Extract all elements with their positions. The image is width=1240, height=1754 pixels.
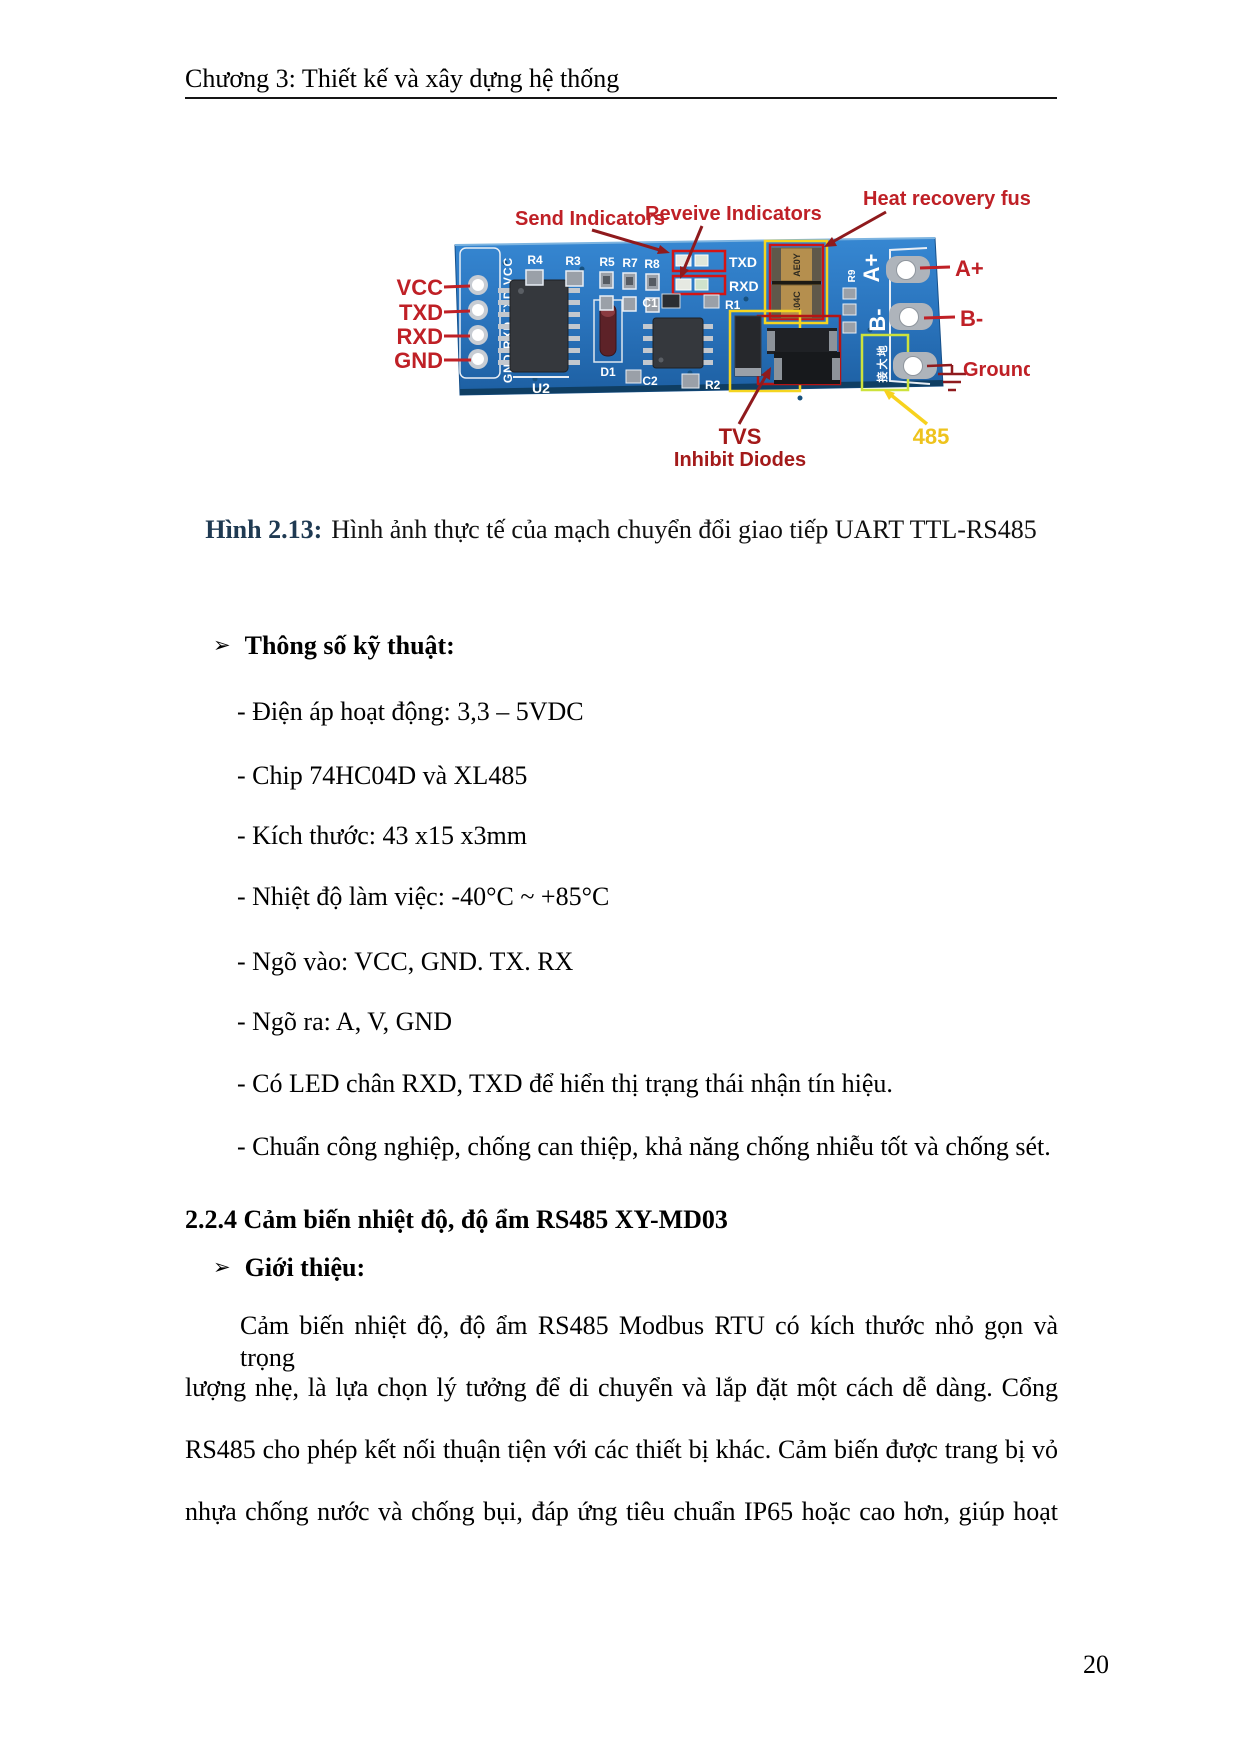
arrow-bullet-icon: ➢: [213, 1252, 231, 1283]
label-tvs: TVS: [719, 424, 762, 449]
label-receive-indicators: Reveive Indicators: [645, 203, 822, 225]
figure-caption: Hình 2.13:Hình ảnh thực tế của mạch chuy…: [185, 515, 1057, 545]
intro-heading: ➢ Giới thiệu:: [213, 1252, 365, 1283]
label-inhibit-diodes: Inhibit Diodes: [674, 449, 806, 471]
silkscreen-c1: C1: [642, 296, 658, 310]
label-485: 485: [913, 424, 950, 449]
label-rxd: RXD: [397, 324, 443, 349]
ic-xl485: [643, 318, 713, 368]
spec-item-led: - Có LED chân RXD, TXD để hiển thị trạng…: [237, 1068, 893, 1099]
silkscreen-u2: U2: [532, 380, 550, 396]
silkscreen-a-plus: A+: [859, 254, 884, 283]
section-heading-224: 2.2.4 Cảm biến nhiệt độ, độ ẩm RS485 XY-…: [185, 1204, 728, 1235]
silkscreen-r7: R7: [622, 256, 638, 270]
paragraph-line-3: RS485 cho phép kết nối thuận tiện với cá…: [185, 1434, 1058, 1466]
silkscreen-b-minus: B-: [865, 308, 890, 331]
paragraph-line-1: Cảm biến nhiệt độ, độ ẩm RS485 Modbus RT…: [185, 1310, 1058, 1374]
silkscreen-d1: D1: [600, 365, 616, 379]
intro-heading-label: Giới thiệu:: [245, 1252, 366, 1283]
chapter-header: Chương 3: Thiết kế và xây dựng hệ thống: [185, 64, 1057, 99]
spec-item-standard: - Chuẩn công nghiệp, chống can thiệp, kh…: [237, 1131, 1051, 1162]
spec-item-outputs: - Ngõ ra: A, V, GND: [237, 1006, 452, 1037]
figure-caption-label: Hình 2.13:: [205, 515, 322, 544]
spec-item-voltage: - Điện áp hoạt động: 3,3 – 5VDC: [237, 696, 584, 727]
spec-item-inputs: - Ngõ vào: VCC, GND. TX. RX: [237, 946, 573, 977]
silkscreen-r9: R9: [847, 269, 858, 282]
silkscreen-ground-cn: 接大地: [875, 344, 889, 383]
spec-item-temperature: - Nhiệt độ làm việc: -40°C ~ +85°C: [237, 881, 609, 912]
arrow-bullet-icon: ➢: [213, 630, 231, 661]
fuse-top-marking: AE0Y: [792, 253, 802, 277]
label-gnd: GND: [394, 348, 443, 373]
silkscreen-rxd: RXD: [729, 278, 759, 294]
label-b-minus: B-: [960, 306, 983, 331]
paragraph-line-2: lượng nhẹ, là lựa chọn lý tưởng để di ch…: [185, 1372, 1058, 1404]
label-txd: TXD: [399, 300, 443, 325]
board-illustration: GND RXD TXD VCC U2: [330, 148, 1030, 483]
label-heat-recovery-fuse: Heat recovery fuse: [863, 188, 1030, 210]
label-ground: Ground: [963, 359, 1030, 381]
paragraph-line-4: nhựa chống nước và chống bụi, đáp ứng ti…: [185, 1496, 1058, 1528]
silkscreen-r3: R3: [565, 254, 581, 268]
spec-item-chip: - Chip 74HC04D và XL485: [237, 760, 527, 791]
label-a-plus: A+: [955, 256, 984, 281]
silkscreen-c2: C2: [642, 374, 658, 388]
fuse-bottom-marking: 104C: [792, 291, 802, 313]
silkscreen-r4: R4: [527, 253, 543, 267]
spec-item-size: - Kích thước: 43 x15 x3mm: [237, 820, 527, 851]
specs-heading-label: Thông số kỹ thuật:: [245, 630, 455, 661]
silkscreen-txd: TXD: [729, 254, 757, 270]
label-send-indicators: Send Indicators: [515, 208, 665, 230]
silkscreen-r8: R8: [644, 257, 660, 271]
silkscreen-r2: R2: [705, 378, 721, 392]
specs-heading: ➢ Thông số kỹ thuật:: [213, 630, 455, 661]
label-vcc: VCC: [397, 275, 444, 300]
figure-caption-text: Hình ảnh thực tế của mạch chuyển đổi gia…: [331, 515, 1036, 544]
page-number: 20: [1083, 1650, 1109, 1680]
silkscreen-r5: R5: [599, 255, 615, 269]
figure-uart-rs485-board: GND RXD TXD VCC U2: [330, 148, 1030, 483]
document-page: Chương 3: Thiết kế và xây dựng hệ thống: [0, 0, 1240, 1754]
